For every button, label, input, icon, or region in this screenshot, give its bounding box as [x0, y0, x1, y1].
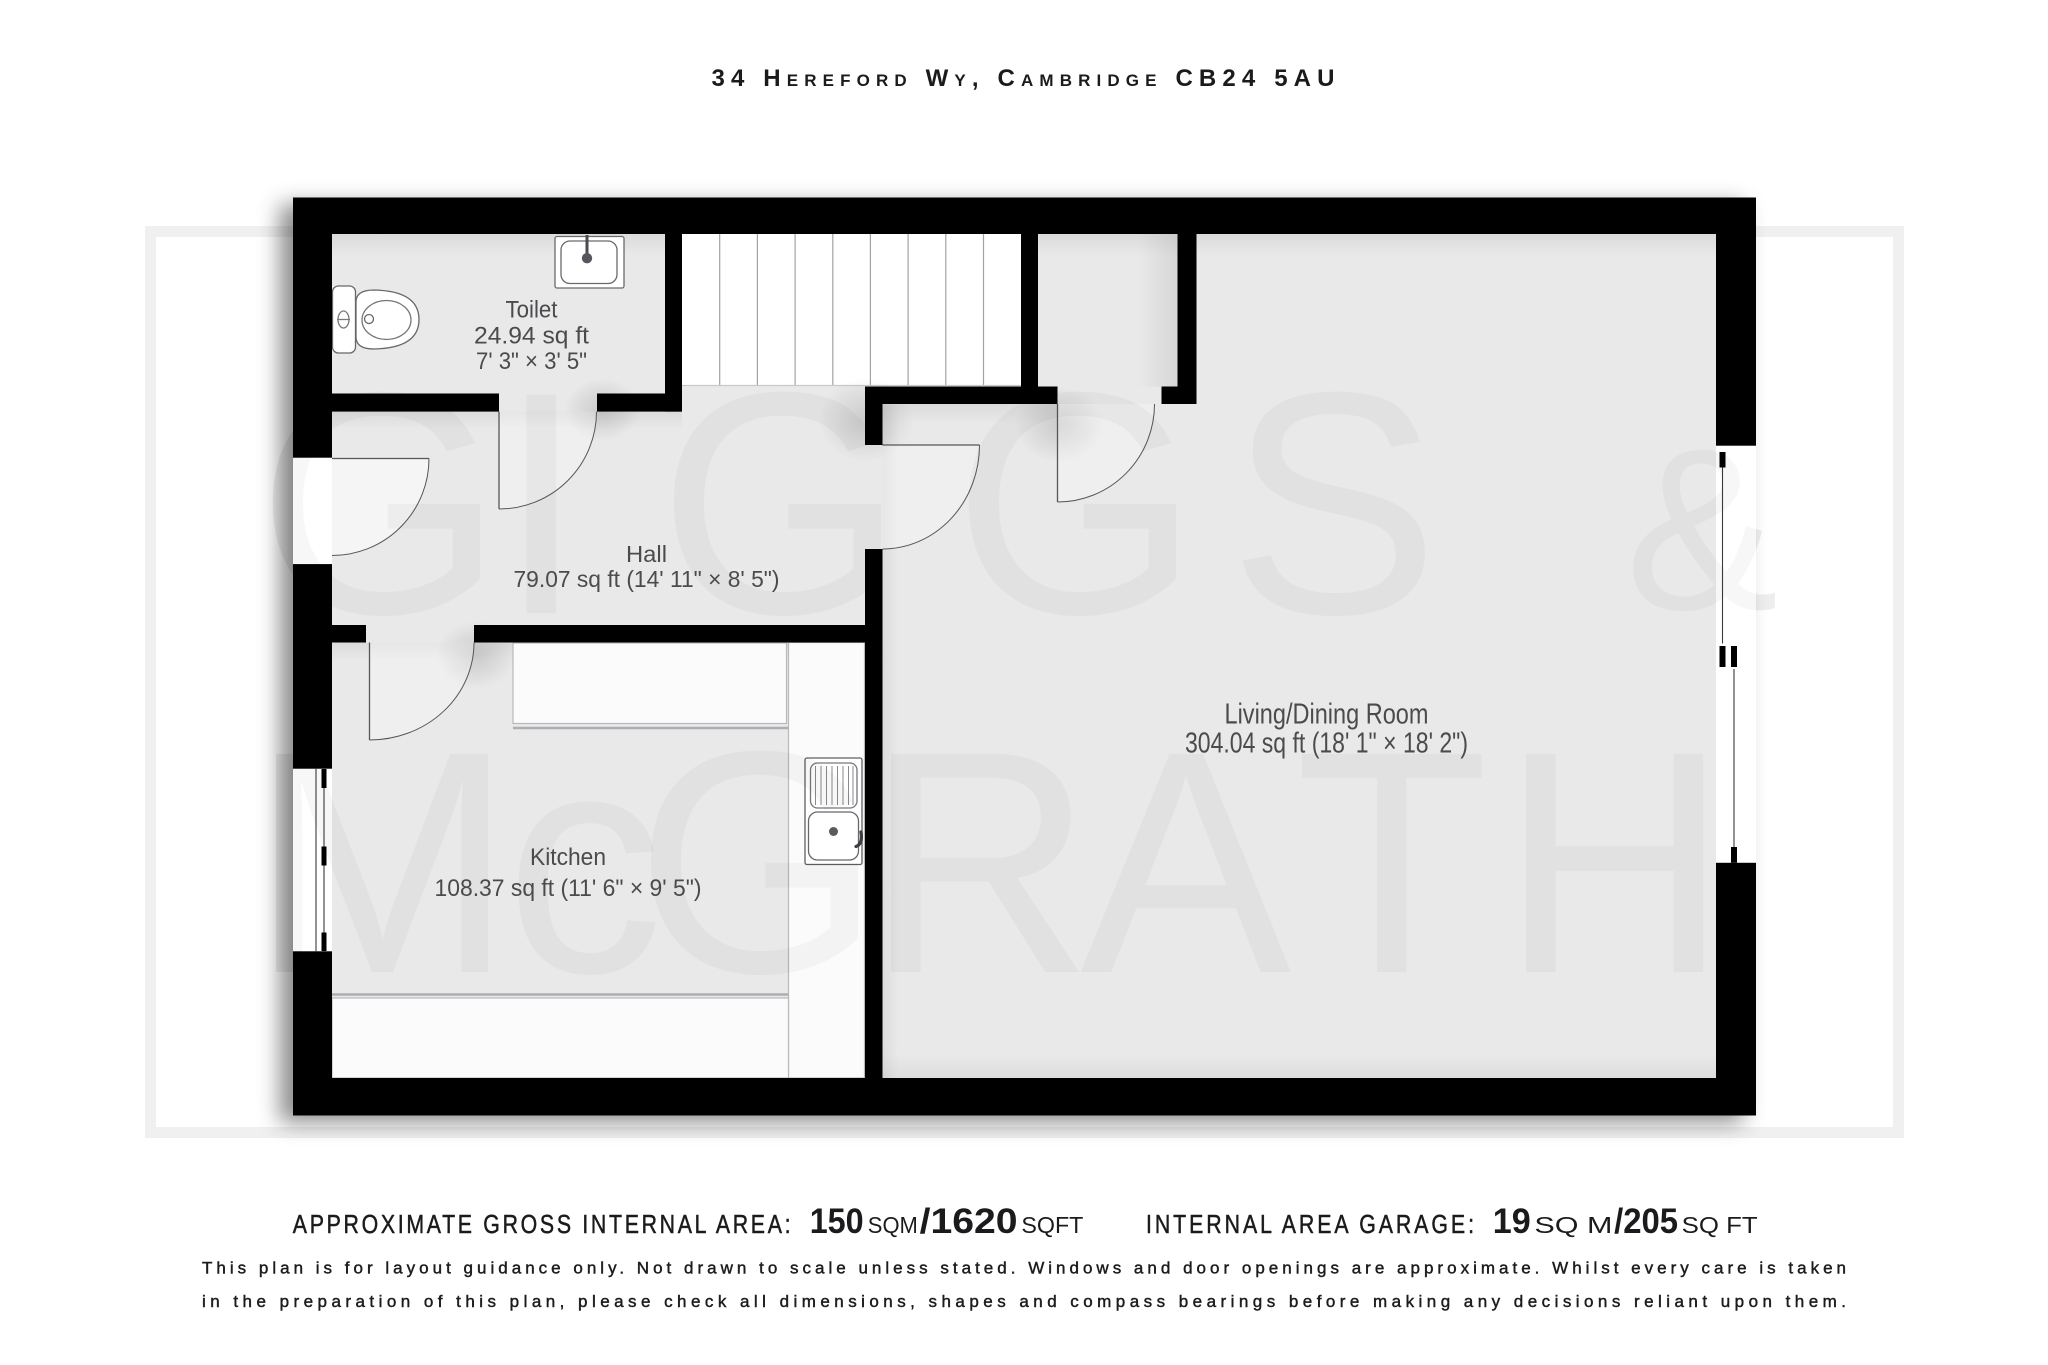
svg-text:Hall: Hall: [626, 541, 667, 567]
svg-text:in the preparation of this pla: in the preparation of this plan, please …: [202, 1292, 1846, 1311]
svg-text:SQ FT: SQ FT: [1682, 1212, 1758, 1238]
svg-text:SQM: SQM: [868, 1212, 918, 1238]
svg-text:304.04 sq ft (18' 1" × 18' 2"): 304.04 sq ft (18' 1" × 18' 2"): [1185, 728, 1468, 760]
svg-text:SQ M: SQ M: [1534, 1212, 1612, 1238]
svg-text:79.07 sq ft (14' 11" × 8' 5"): 79.07 sq ft (14' 11" × 8' 5"): [514, 566, 780, 592]
svg-text:108.37 sq ft (11' 6" × 9' 5"): 108.37 sq ft (11' 6" × 9' 5"): [435, 875, 702, 902]
svg-text:McGRATH: McGRATH: [250, 686, 1729, 1040]
svg-text:7' 3" × 3' 5": 7' 3" × 3' 5": [476, 348, 587, 375]
svg-text:APPROXIMATE GROSS INTERNAL ARE: APPROXIMATE GROSS INTERNAL AREA:: [293, 1210, 791, 1240]
svg-text:Toilet: Toilet: [506, 297, 558, 324]
svg-text:150: 150: [810, 1202, 864, 1241]
svg-text:This plan is for layout guidan: This plan is for layout guidance only. N…: [202, 1259, 1846, 1278]
svg-text:SQFT: SQFT: [1021, 1212, 1083, 1238]
svg-text:19: 19: [1493, 1202, 1531, 1241]
svg-text:34 Hereford Wy, Cambridge CB24: 34 Hereford Wy, Cambridge CB24 5AU: [712, 65, 1335, 92]
svg-text:/1620: /1620: [920, 1202, 1018, 1241]
svg-text:GIGGS: GIGGS: [257, 327, 1439, 681]
svg-text:Kitchen: Kitchen: [530, 844, 606, 871]
svg-text:/205: /205: [1614, 1202, 1678, 1241]
svg-text:24.94 sq ft: 24.94 sq ft: [474, 323, 589, 350]
svg-text:Living/Dining Room: Living/Dining Room: [1225, 699, 1429, 731]
svg-text:INTERNAL AREA GARAGE:: INTERNAL AREA GARAGE:: [1146, 1210, 1474, 1240]
svg-text:&: &: [1625, 401, 1778, 658]
